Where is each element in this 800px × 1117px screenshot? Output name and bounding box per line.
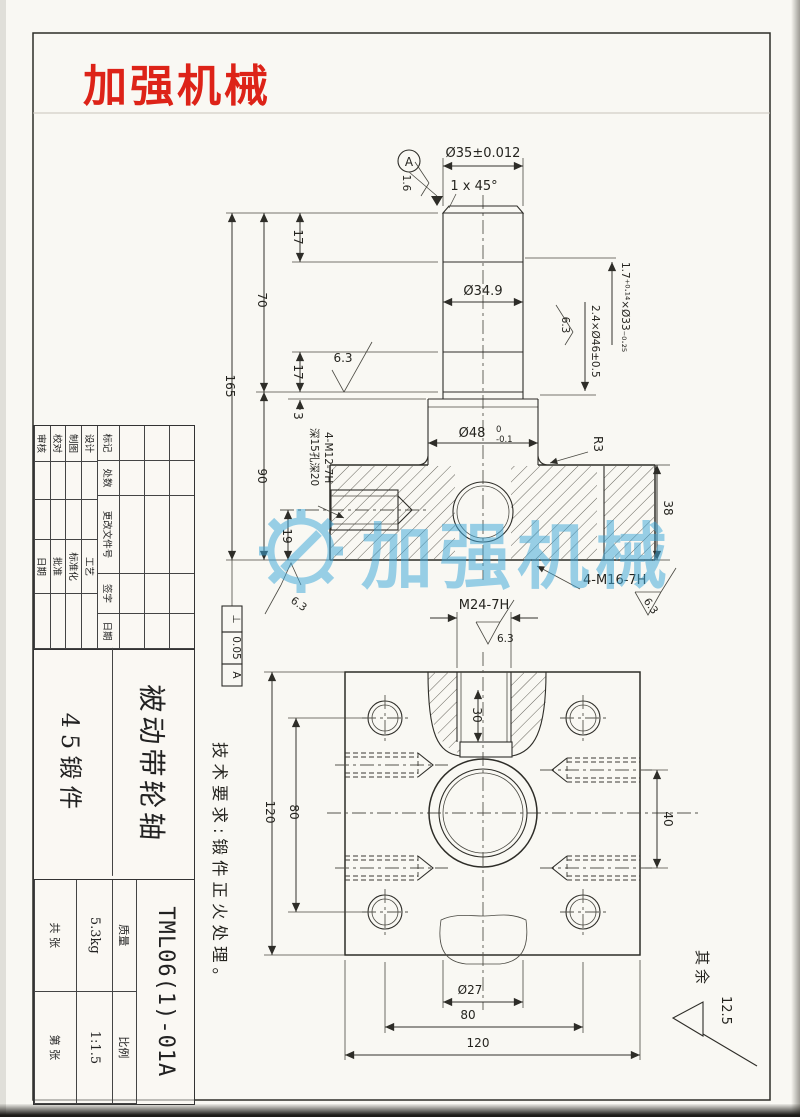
ra63-step: 6.3 [333, 351, 352, 365]
dim-r3: R3 [591, 436, 605, 452]
default-roughness-note: 其余 12.5 [673, 950, 757, 1066]
dim-90: 90 [255, 468, 269, 483]
upper-view [280, 195, 655, 580]
dim-120-h: 120 [467, 1036, 490, 1050]
lower-view [327, 652, 700, 1010]
dim-dia349: Ø34.9 [463, 284, 502, 299]
sig-label: 工艺 [81, 540, 97, 594]
dim-17-top: 17 [291, 229, 305, 244]
scan-edge-right [791, 0, 800, 1117]
dia48-lower-tol: -0.1 [496, 435, 513, 445]
dim-70: 70 [255, 292, 269, 307]
corner-holes [362, 695, 606, 935]
dim-165: 165 [223, 375, 237, 398]
dim-80-v: 80 [287, 804, 301, 819]
dim-dia35-label: Ø35±0.012 [446, 146, 521, 161]
datum-a-label: A [405, 155, 414, 169]
roughness-triangle-icon [673, 1002, 703, 1036]
ra63-m24: 6.3 [497, 633, 514, 645]
sig-label: 制图 [66, 426, 82, 462]
dim-40: 40 [661, 811, 675, 826]
mass-value: 5.3kg [76, 880, 112, 992]
dim-19: 19 [280, 528, 294, 543]
dim-30: 30 [470, 707, 484, 722]
perp-value: 0.05 [230, 636, 242, 659]
others-roughness-value: 12.5 [718, 996, 733, 1025]
others-prefix-label: 其余 [693, 950, 711, 988]
dia48-upper-tol: 0 [496, 425, 501, 435]
perpendicularity-frame: ⊥ 0.05 A [222, 560, 242, 686]
dim-38: 38 [661, 500, 675, 515]
m24-label: M24-7H [459, 598, 510, 613]
sheet-number: 第 张 [34, 992, 76, 1104]
dim-dia27: Ø27 [458, 983, 483, 997]
sig-label: 审核 [34, 426, 50, 462]
part-name: 被动带轮轴 [112, 648, 194, 881]
m16-label: 4-M16-7H [583, 573, 646, 588]
drawing-number: TML06(1)-01A [136, 880, 194, 1104]
rev-header-cell: 更改文件号 [97, 496, 119, 574]
groove-33-label: 1.7⁺⁰·¹⁴×Ø33₋₀.₂₅ [619, 262, 631, 352]
groove-46-label: 2.4×Ø46±0.5 [589, 305, 601, 378]
material-spec: 45锻件 [34, 648, 112, 880]
rev-header-cell: 签字 [97, 574, 119, 614]
m12-depth-label: 深15孔深20 [308, 428, 321, 486]
dim-80-h: 80 [460, 1008, 475, 1022]
drawing-sheet: 加强机械 [0, 0, 800, 1117]
chamfer-label: 1 x 45° [450, 179, 497, 194]
dim-3: 3 [291, 412, 305, 420]
perp-datum: A [230, 671, 242, 679]
perp-symbol: ⊥ [230, 614, 242, 623]
scale-label: 比例 [112, 992, 136, 1104]
sheet-total: 共 张 [34, 880, 76, 992]
scan-edge-left [0, 0, 6, 1117]
sig-label: 校对 [50, 426, 66, 462]
rev-header-cell: 日期 [97, 614, 119, 649]
sig-label: 日期 [34, 540, 50, 594]
upper-view-dimensions: Ø35±0.012 1 x 45° A 1.6 17 17 [222, 146, 676, 686]
scan-edge-bottom [0, 1104, 800, 1117]
dim-dia48: Ø48 [459, 426, 486, 441]
revision-grid [119, 426, 194, 649]
tech-requirements-note: 技术要求:锻件正火处理。 [210, 742, 229, 989]
mass-label: 质量 [112, 880, 136, 992]
ra63-groove: 6.3 [559, 317, 571, 334]
rev-header-cell: 处数 [97, 461, 119, 496]
sig-label: 设计 [81, 426, 97, 462]
ra16-label: 1.6 [400, 175, 412, 192]
lower-view-dimensions: M24-7H 6.3 30 120 80 40 [263, 598, 675, 1060]
sig-label: 批准 [50, 540, 66, 594]
mass-scale-grid: 质量 比例 5.3kg 1:1.5 共 张 第 张 [34, 880, 136, 1104]
sig-label: 标准化 [66, 540, 82, 594]
revision-header-row: 标记 处数 更改文件号 签字 日期 [97, 426, 119, 649]
rev-header-cell: 标记 [97, 426, 119, 461]
ra63-bottom: 6.3 [288, 595, 309, 614]
dim-17-mid: 17 [291, 364, 305, 379]
scale-value: 1:1.5 [76, 992, 112, 1104]
datum-triangle [431, 196, 443, 206]
signature-grid: 设计 工艺 制图 标准化 校对 批准 审核 日期 [34, 426, 97, 649]
side-tapped-holes [335, 753, 652, 880]
title-block: 标记 处数 更改文件号 签字 日期 设计 工艺 制图 标准化 校对 批准 审核 … [33, 425, 195, 1105]
m12-label: 4-M12-7H [322, 432, 334, 483]
dim-120-v: 120 [263, 801, 277, 824]
